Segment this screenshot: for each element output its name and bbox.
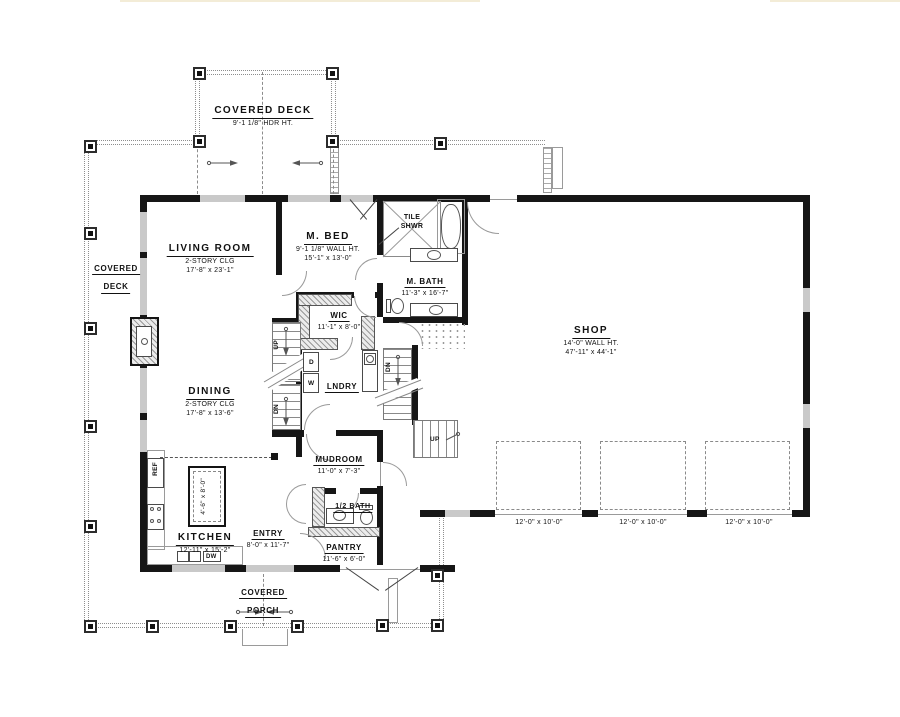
room-size: 11'-3" x 16'-7" xyxy=(401,290,448,298)
covered-deck-top-label: COVERED DECK 9'-1 1/8" HDR HT. xyxy=(212,100,313,128)
room-name: PANTRY xyxy=(324,543,364,554)
m-bath-label: M. BATH 11'-3" x 16'-7" xyxy=(401,271,448,298)
door-arc-wic-bottom xyxy=(330,337,353,360)
wic-hatch-wall xyxy=(361,316,375,350)
garage-size: 12'-0" x 10'-0" xyxy=(515,519,563,527)
garage-opening-2 xyxy=(598,510,687,517)
room-name: SHOP xyxy=(572,325,610,339)
garage-size: 12'-0" x 10'-0" xyxy=(619,519,667,527)
room-name: DECK xyxy=(101,282,130,293)
stair-dn-arrow xyxy=(394,354,402,386)
porch-post xyxy=(84,140,97,153)
room-name: COVERED xyxy=(239,588,287,599)
porch-post xyxy=(84,227,97,240)
room-size: 8'-0" x 11'-7" xyxy=(247,542,290,550)
porch-post xyxy=(431,569,444,582)
room-name: LNDRY xyxy=(325,382,359,393)
tile-shwr-label: TILE SHWR xyxy=(401,213,424,231)
pantry-hatch-wall xyxy=(308,527,380,537)
deck-rail xyxy=(195,70,200,144)
room-name: TILE xyxy=(401,214,424,222)
deck-centerline xyxy=(262,72,263,194)
island-size-label: 4'-6" x 8'-0" xyxy=(200,478,207,515)
door-arc-mudroom-porch xyxy=(383,462,407,486)
window xyxy=(200,195,245,202)
window xyxy=(341,195,373,202)
toilet-icon xyxy=(391,298,404,314)
kitchen-label: KITCHEN 12'-11" x 15'-2" xyxy=(176,527,234,555)
room-size: 11'-0" x 7'-3" xyxy=(313,468,364,476)
tile-floor xyxy=(419,322,465,349)
deck-stair xyxy=(543,147,552,193)
door-arc-french-bottom xyxy=(286,504,306,524)
island-overhang xyxy=(193,471,221,522)
porch-post xyxy=(431,619,444,632)
window xyxy=(803,404,810,428)
garage-opening-3 xyxy=(707,510,792,517)
porch-post xyxy=(84,620,97,633)
washer-box: W xyxy=(303,373,319,393)
wall-lndry-mud xyxy=(336,430,383,436)
stair-up-label: UP xyxy=(430,436,440,443)
wall-mbed-bottom-stub xyxy=(375,292,383,298)
window xyxy=(288,195,330,202)
deck-edge-line xyxy=(197,144,198,194)
garage-door-outline-1 xyxy=(496,441,581,510)
entry-label: ENTRY 8'-0" x 11'-7" xyxy=(247,523,290,550)
room-note: 2-STORY CLG xyxy=(167,258,254,266)
fireplace-vent xyxy=(141,338,148,345)
window xyxy=(140,258,147,315)
room-note: 9'-1 1/8" HDR HT. xyxy=(212,120,313,128)
porch-post xyxy=(146,620,159,633)
porch-post xyxy=(376,619,389,632)
deck-rail xyxy=(195,70,336,75)
window xyxy=(172,565,225,572)
room-size: 17'-8" x 23'-1" xyxy=(167,267,254,275)
page-edge-line xyxy=(770,0,900,2)
dining-label: DINING 2-STORY CLG 17'-8" x 13'-6" xyxy=(185,381,235,418)
two-story-line xyxy=(160,457,272,458)
room-note: 14'-0" WALL HT. xyxy=(563,340,618,348)
stair-up-leader xyxy=(446,431,460,441)
room-name: COVERED DECK xyxy=(212,105,313,119)
covered-porch-label: COVERED PORCH xyxy=(239,582,287,619)
garage-door-outline-2 xyxy=(600,441,686,510)
fridge-icon: REF xyxy=(147,458,164,488)
shop-door-opening xyxy=(490,195,517,202)
room-size: 15'-1" x 13'-0" xyxy=(296,255,360,263)
wic-label: WIC 11'-1" x 8'-0" xyxy=(318,305,361,332)
washer-label: W xyxy=(308,380,314,387)
porch-post xyxy=(84,520,97,533)
deck-stair xyxy=(330,146,339,194)
stair-dn-arrow xyxy=(282,396,290,426)
room-name: KITCHEN xyxy=(176,532,234,546)
wall-mud-right-a xyxy=(377,435,383,462)
wall-shop-right xyxy=(803,195,810,517)
door-arc-french-top xyxy=(286,484,306,504)
garage-door-outline-3 xyxy=(705,441,790,510)
slider-arrow-left xyxy=(292,159,324,167)
deck-landing xyxy=(552,147,563,189)
tub-icon xyxy=(441,204,461,249)
wall-halfbath-top-b xyxy=(360,488,383,494)
deck-post xyxy=(326,67,339,80)
deck-post xyxy=(434,137,447,150)
pantry-label: PANTRY 11'-6" x 6'-0" xyxy=(323,537,366,564)
garage-opening-1 xyxy=(495,510,582,517)
half-bath-label: 1/2 BATH xyxy=(333,495,372,513)
window xyxy=(803,288,810,312)
deck-post xyxy=(193,135,206,148)
fridge-label: REF xyxy=(152,462,159,476)
door-arc-shop-mandoor xyxy=(467,202,499,234)
window xyxy=(140,212,147,252)
door-arc-lndry xyxy=(304,404,330,430)
room-name: 1/2 BATH xyxy=(333,503,372,513)
burner xyxy=(150,519,154,523)
room-name: WIC xyxy=(328,311,349,322)
stair-dn-label: DN xyxy=(385,362,392,372)
sink-icon xyxy=(427,250,441,260)
shop-label: SHOP 14'-0" WALL HT. 47'-11" x 44'-1" xyxy=(563,320,618,357)
room-name: M. BATH xyxy=(405,277,446,288)
room-note: 9'-1 1/8" WALL HT. xyxy=(296,246,360,254)
mudroom-hatch-wall xyxy=(312,487,325,527)
garage-door-label-3: 12'-0" x 10'-0" xyxy=(725,518,773,527)
garage-size: 12'-0" x 10'-0" xyxy=(725,519,773,527)
room-name: COVERED xyxy=(92,264,140,275)
deck-post xyxy=(326,135,339,148)
sink-icon xyxy=(429,305,443,315)
porch-post xyxy=(224,620,237,633)
window xyxy=(140,420,147,452)
slider-arrow-right xyxy=(206,159,238,167)
porch-post xyxy=(84,420,97,433)
burner xyxy=(157,507,161,511)
room-name: DINING xyxy=(186,386,233,400)
mudroom-label: MUDROOM 11'-0" x 7'-3" xyxy=(313,449,364,476)
room-name: PORCH xyxy=(245,606,281,617)
room-note: 2-STORY CLG xyxy=(185,401,235,409)
deck-edge-line xyxy=(333,144,334,194)
deck-rail xyxy=(84,140,198,145)
room-size: 17'-8" x 13'-6" xyxy=(185,410,235,418)
wall-stair-cap xyxy=(272,430,304,437)
column-mark xyxy=(271,453,278,460)
room-name: ENTRY xyxy=(251,529,285,540)
window xyxy=(140,368,147,413)
room-size: 11'-1" x 8'-0" xyxy=(318,324,361,332)
wall-bath-left xyxy=(377,283,383,317)
covered-deck-left-label: COVERED DECK xyxy=(92,258,140,295)
burner xyxy=(157,519,161,523)
deck-rail xyxy=(84,140,89,628)
sink-icon xyxy=(366,355,374,363)
closet-bifold-leaf xyxy=(350,199,367,220)
m-bed-label: M. BED 9'-1 1/8" WALL HT. 15'-1" x 13'-0… xyxy=(296,226,360,263)
dryer-label: D xyxy=(309,359,314,366)
porch-post xyxy=(291,620,304,633)
room-size: 12'-11" x 15'-2" xyxy=(176,547,234,555)
lndry-label: LNDRY xyxy=(325,376,359,394)
wall-living-mbed xyxy=(276,195,282,275)
page-edge-line xyxy=(120,0,480,2)
porch-steps xyxy=(242,629,288,646)
stair-up-label: UP xyxy=(273,340,280,350)
porch-post xyxy=(84,322,97,335)
dryer-box: D xyxy=(303,352,319,372)
burner xyxy=(150,507,154,511)
window xyxy=(445,510,470,517)
dishwasher-label: DW xyxy=(206,554,217,560)
room-size: 11'-6" x 6'-0" xyxy=(323,556,366,564)
garage-door-label-2: 12'-0" x 10'-0" xyxy=(619,518,667,527)
deck-rail xyxy=(331,70,336,144)
stair-dn-label: DN xyxy=(273,404,280,414)
stair-up-arrow xyxy=(282,326,290,356)
garage-door-label-1: 12'-0" x 10'-0" xyxy=(515,518,563,527)
floor-plan-canvas: D W REF DW 4'-6" x 8'-0" xyxy=(0,0,900,717)
deck-post xyxy=(193,67,206,80)
closet-bifold-leaf xyxy=(360,199,377,220)
room-name: SHWR xyxy=(401,223,424,231)
living-room-label: LIVING ROOM 2-STORY CLG 17'-8" x 23'-1" xyxy=(167,238,254,275)
window xyxy=(246,565,294,572)
room-name: MUDROOM xyxy=(313,455,364,466)
room-name: LIVING ROOM xyxy=(167,243,254,257)
room-size: 47'-11" x 44'-1" xyxy=(563,349,618,357)
room-name: M. BED xyxy=(304,231,351,245)
